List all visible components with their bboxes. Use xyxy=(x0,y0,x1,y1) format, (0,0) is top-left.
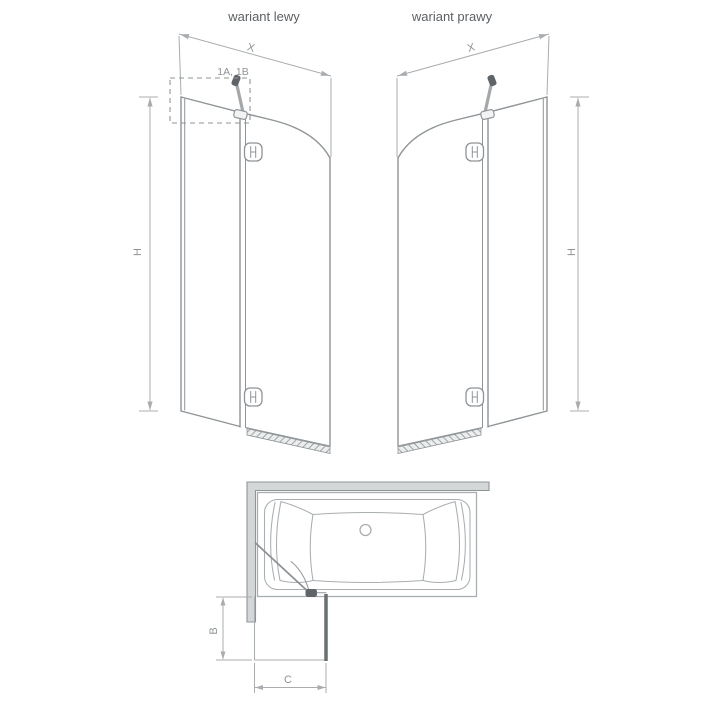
variant-left-title: wariant lewy xyxy=(227,9,300,24)
pivot-hinge-plan xyxy=(306,589,318,597)
arrowhead xyxy=(221,652,226,660)
bathtub-outer-rim xyxy=(258,493,477,597)
door-swung-position-line xyxy=(256,543,308,591)
wall xyxy=(247,482,489,622)
height-label-right: H xyxy=(566,248,578,256)
variant-right-title: wariant prawy xyxy=(411,9,493,24)
bathtub-end-wall-left-inner xyxy=(276,502,281,581)
bathtub xyxy=(258,493,477,597)
height-label-left: H xyxy=(132,248,144,256)
bathtub-end-wall-left-outer xyxy=(271,503,275,581)
door-open-outline xyxy=(255,597,327,660)
door-width-label: C xyxy=(284,674,292,686)
bathtub-corner-line-tl xyxy=(281,502,313,515)
plan-view: B C xyxy=(208,482,489,693)
arrowhead xyxy=(255,685,263,690)
depth-dimension: B xyxy=(208,597,252,660)
bathtub-end-wall-right-inner xyxy=(455,502,460,581)
hinge-parts-label: 1A, 1B xyxy=(217,66,249,78)
bathtub-corner-line-tr xyxy=(423,502,455,515)
bathtub-corner-line-br xyxy=(423,581,456,583)
variant-left-view: 1A, 1B wariant lewy X H xyxy=(132,9,331,454)
drain xyxy=(360,525,371,536)
arrowhead xyxy=(221,598,226,606)
depth-label: B xyxy=(208,627,220,634)
bath-screen-technical-drawing: 1A, 1B wariant lewy X H wariant prawy X … xyxy=(0,0,720,720)
width-label-right: X xyxy=(466,41,477,55)
arrowhead xyxy=(318,685,326,690)
door-width-dimension: C xyxy=(255,663,327,693)
width-label-left: X xyxy=(246,41,257,55)
bathtub-end-wall-right-outer xyxy=(461,503,465,581)
bathtub-floor xyxy=(310,513,426,583)
variant-right-screen-art xyxy=(397,32,589,454)
screen-plan xyxy=(255,543,327,661)
drawing-canvas: 1A, 1B wariant lewy X H wariant prawy X … xyxy=(0,0,720,720)
variant-left-screen-art xyxy=(139,32,331,454)
variant-right-view: wariant prawy X H xyxy=(397,9,589,454)
